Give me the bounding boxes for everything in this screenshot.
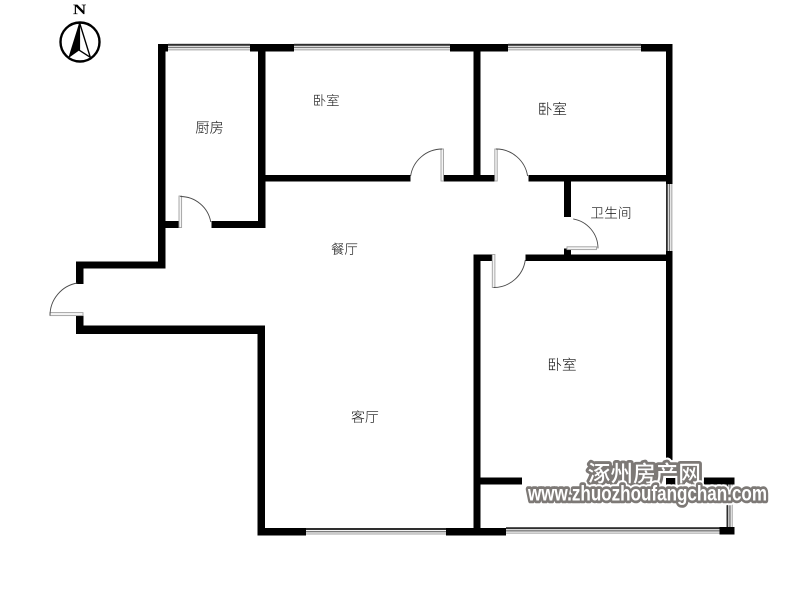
svg-text:www.zhuozhoufangchan.com: www.zhuozhoufangchan.com bbox=[527, 482, 767, 506]
